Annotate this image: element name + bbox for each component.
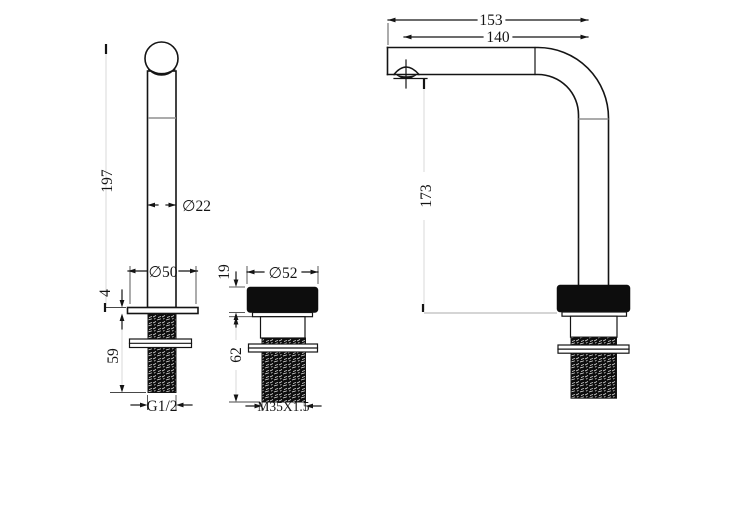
arrowhead-left (247, 270, 255, 275)
arrowhead-down (234, 280, 239, 288)
spout-base-cap (557, 285, 630, 312)
dim-cap-diameter: ∅52 (247, 265, 318, 282)
arrowhead-down (120, 300, 125, 308)
dim-label-body-diameter: ∅22 (182, 198, 211, 215)
dim-label-base-diameter: ∅50 (148, 264, 177, 281)
dim-outlet-height: 173 (418, 79, 435, 312)
arrowhead-left (388, 18, 396, 23)
arrowhead-down (234, 395, 239, 403)
spout-side-view: 153 140 173 (388, 12, 631, 398)
dim-label-shank-length: 59 (105, 348, 122, 364)
dim-cap-height: 19 (216, 264, 238, 327)
dim-label-overall-reach: 153 (479, 12, 503, 29)
arrowhead-down (120, 385, 125, 393)
dim-label-outlet-reach: 140 (486, 29, 510, 46)
dim-label-thread-m35: M35X1.5 (257, 399, 309, 414)
dim-label-flange-thickness: 4 (97, 289, 114, 297)
handle-thread-shank (148, 314, 176, 393)
arrowhead-right (311, 270, 319, 275)
cartridge-view: ∅52 19 62 M35X1.5 (216, 264, 321, 414)
technical-drawing-page: 197 ∅22 ∅50 4 59 (0, 0, 734, 527)
spout-outer-contour (388, 48, 609, 286)
arrowhead-up (120, 314, 125, 322)
cartridge-cap (247, 287, 318, 313)
handle-base-flange (128, 308, 199, 314)
dim-base-diameter: ∅50 (128, 264, 198, 281)
cartridge-neck (261, 317, 306, 338)
dim-thread-spec-m35: M35X1.5 (246, 399, 321, 414)
dim-label-thread: G1/2 (147, 398, 178, 415)
dim-flange-thickness: 4 (97, 289, 124, 329)
spout-inner-contour (388, 75, 579, 286)
dim-label-cap-height: 19 (216, 264, 233, 280)
dim-label-body-length: 62 (228, 347, 245, 363)
drawing-canvas: 197 ∅22 ∅50 4 59 (0, 0, 734, 527)
arrowhead-right (581, 18, 589, 23)
dim-thread-spec: G1/2 (131, 398, 192, 415)
handle-side-view: 197 ∅22 ∅50 4 59 (97, 42, 211, 415)
cartridge-lip (253, 313, 313, 317)
dim-overall-reach: 153 (388, 12, 588, 29)
arrowhead-left (404, 35, 412, 40)
arrowhead-left (128, 269, 136, 274)
dim-shank-length: 59 (104, 342, 124, 393)
dim-outlet-reach: 140 (404, 29, 588, 46)
spout-neck (571, 316, 618, 337)
spout-base-lip (562, 312, 627, 316)
arrowhead-right (581, 35, 589, 40)
dim-label-outlet-height: 173 (418, 184, 435, 208)
dim-label-cap-diameter: ∅52 (268, 265, 297, 282)
dim-label-height: 197 (99, 169, 116, 193)
dim-height-197: 197 (99, 44, 116, 312)
